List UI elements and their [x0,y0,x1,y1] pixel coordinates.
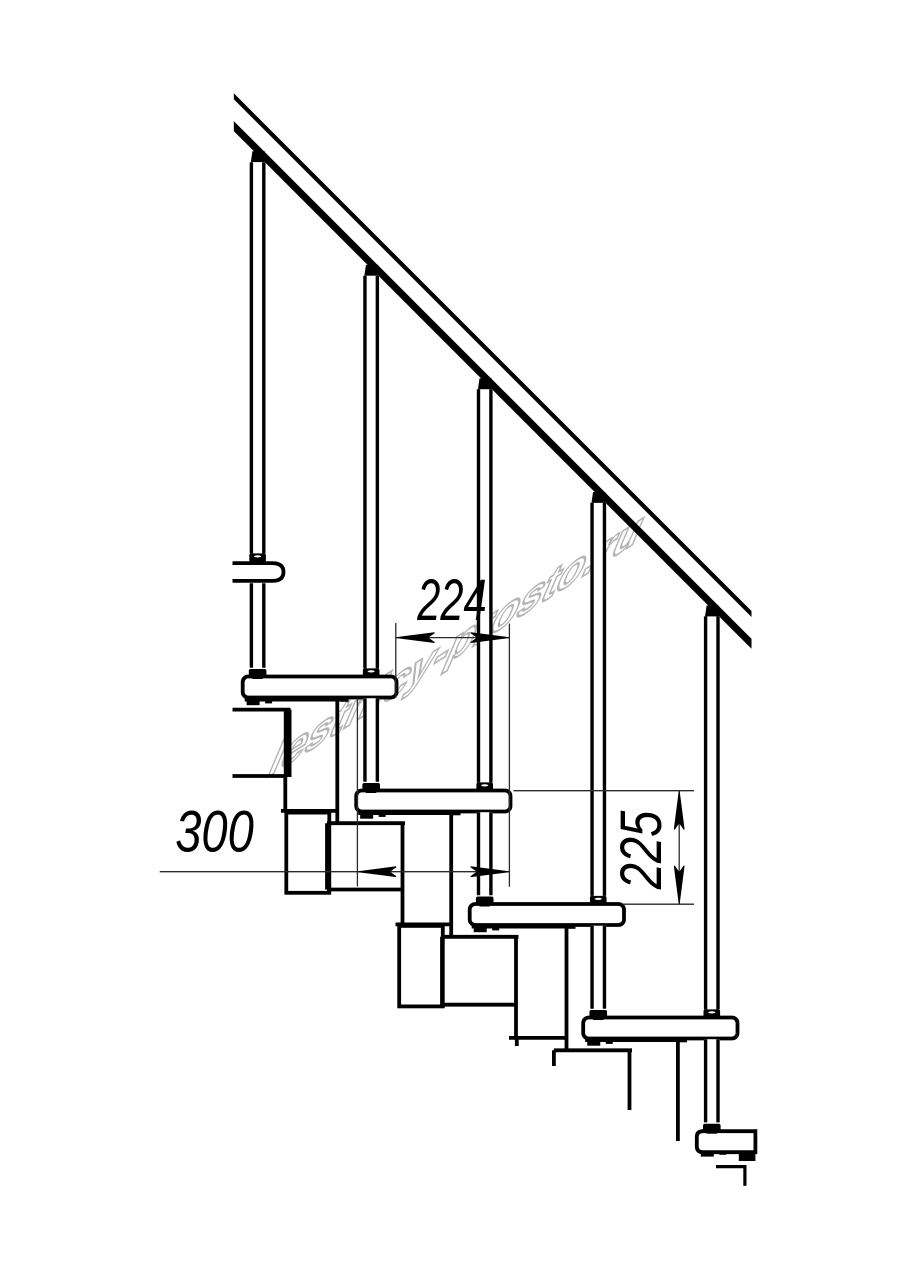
svg-text:224: 224 [416,567,486,633]
svg-text:300: 300 [175,800,254,865]
svg-text:225: 225 [609,810,674,890]
